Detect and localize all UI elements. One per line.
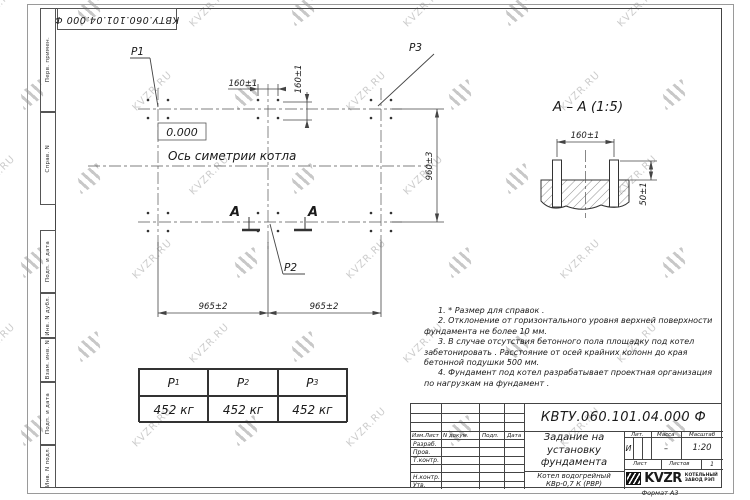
factory-name: КОТЕЛЬНЫЙ ЗАВОД РЭП xyxy=(685,473,719,483)
dim-span-bottom xyxy=(158,242,381,317)
load-table: P1 P2 P3 452 кг 452 кг 452 кг xyxy=(138,368,348,422)
note-3: 3. В случае отсутствия бетонного пола пл… xyxy=(424,337,722,368)
tb-lit-value: И xyxy=(624,438,633,458)
tb-col-sign: Подп. xyxy=(482,433,499,439)
load-table-value-p1: 452 кг xyxy=(139,396,208,423)
load-table-value-p2: 452 кг xyxy=(208,396,277,423)
tb-row-razrab: Разраб. xyxy=(413,441,437,448)
note-2: 2. Отклонение от горизонтального уровня … xyxy=(424,316,722,337)
section-title: А – А (1:5) xyxy=(552,99,623,115)
load-table-value-p3: 452 кг xyxy=(278,396,347,423)
tb-doc-number: КВТУ.060.101.04.000 Ф xyxy=(524,404,723,431)
level-mark: 0.000 xyxy=(166,126,198,139)
kvzr-logo-text: KVZR xyxy=(644,471,682,486)
dim-width-right xyxy=(392,109,444,222)
section-mark-right-letter: А xyxy=(307,205,318,220)
anchor-bolt-dots xyxy=(147,99,393,233)
dim-label-160-v: 160±1 xyxy=(294,65,304,94)
plan-axes xyxy=(88,84,428,252)
tb-row-tkontr: Т.контр. xyxy=(413,457,439,464)
callout-p1: P1 xyxy=(131,46,144,58)
title-block: Изм.Лист N докум. Подп. Дата Разраб. Про… xyxy=(410,403,722,488)
tb-sheets-value: 1 xyxy=(701,459,723,469)
tb-row-nkontr: Н.контр. xyxy=(413,474,440,481)
notes-block: 1. * Размер для справок . 2. Отклонение … xyxy=(424,306,722,389)
leader-lines xyxy=(130,54,434,274)
tb-scale-value: 1:20 xyxy=(681,438,723,458)
tb-col-izm: Изм.Лист xyxy=(412,433,439,439)
anchor-bolt-left xyxy=(553,160,562,207)
tb-sheets-label: Листов xyxy=(669,461,690,467)
tb-logo-area: KVZR КОТЕЛЬНЫЙ ЗАВОД РЭП xyxy=(624,469,721,487)
load-table-header-p2: P2 xyxy=(208,369,277,396)
dim-label-160-h: 160±1 xyxy=(229,79,258,89)
drawing-sheet: KVZR.RUKVZR.RUKVZR.RUKVZR.RUKVZR.RUKVZR.… xyxy=(0,0,750,500)
kvzr-logo-icon xyxy=(626,472,641,485)
anchor-bolt-right xyxy=(610,160,619,207)
dim-label-160-section: 160±1 xyxy=(571,131,600,141)
tb-col-date: Дата xyxy=(507,433,521,439)
tb-sheet-label: Лист xyxy=(633,461,647,467)
load-table-header-p1: P1 xyxy=(139,369,208,396)
section-dims xyxy=(557,139,657,180)
note-4: 4. Фундамент под котел разрабатывает про… xyxy=(424,368,722,389)
section-cut-marks xyxy=(242,217,312,230)
tb-mass-value: – xyxy=(651,438,681,458)
note-1: 1. * Размер для справок . xyxy=(424,306,722,316)
dim-label-965-left: 965±2 xyxy=(199,302,228,312)
callout-p3: P3 xyxy=(409,42,422,54)
tb-product: Котел водогрейный КВр-0,7 К (РВР) xyxy=(526,471,622,489)
symmetry-axis-label: Ось симетрии котла xyxy=(168,149,296,163)
dim-label-50: 50±1 xyxy=(639,182,649,205)
dim-label-960: 960±3 xyxy=(425,152,435,181)
dim-label-965-right: 965±2 xyxy=(310,302,339,312)
tb-col-doc: N докум. xyxy=(443,433,469,439)
format-note: Формат А3 xyxy=(618,489,702,497)
tb-title: Задание на установку фундамента xyxy=(527,432,621,470)
callout-p2: P2 xyxy=(284,262,297,274)
tb-row-prov: Пров. xyxy=(413,449,430,456)
load-table-header-p3: P3 xyxy=(278,369,347,396)
tb-row-utv: Утв. xyxy=(413,482,426,489)
section-mark-left-letter: А xyxy=(229,205,240,220)
